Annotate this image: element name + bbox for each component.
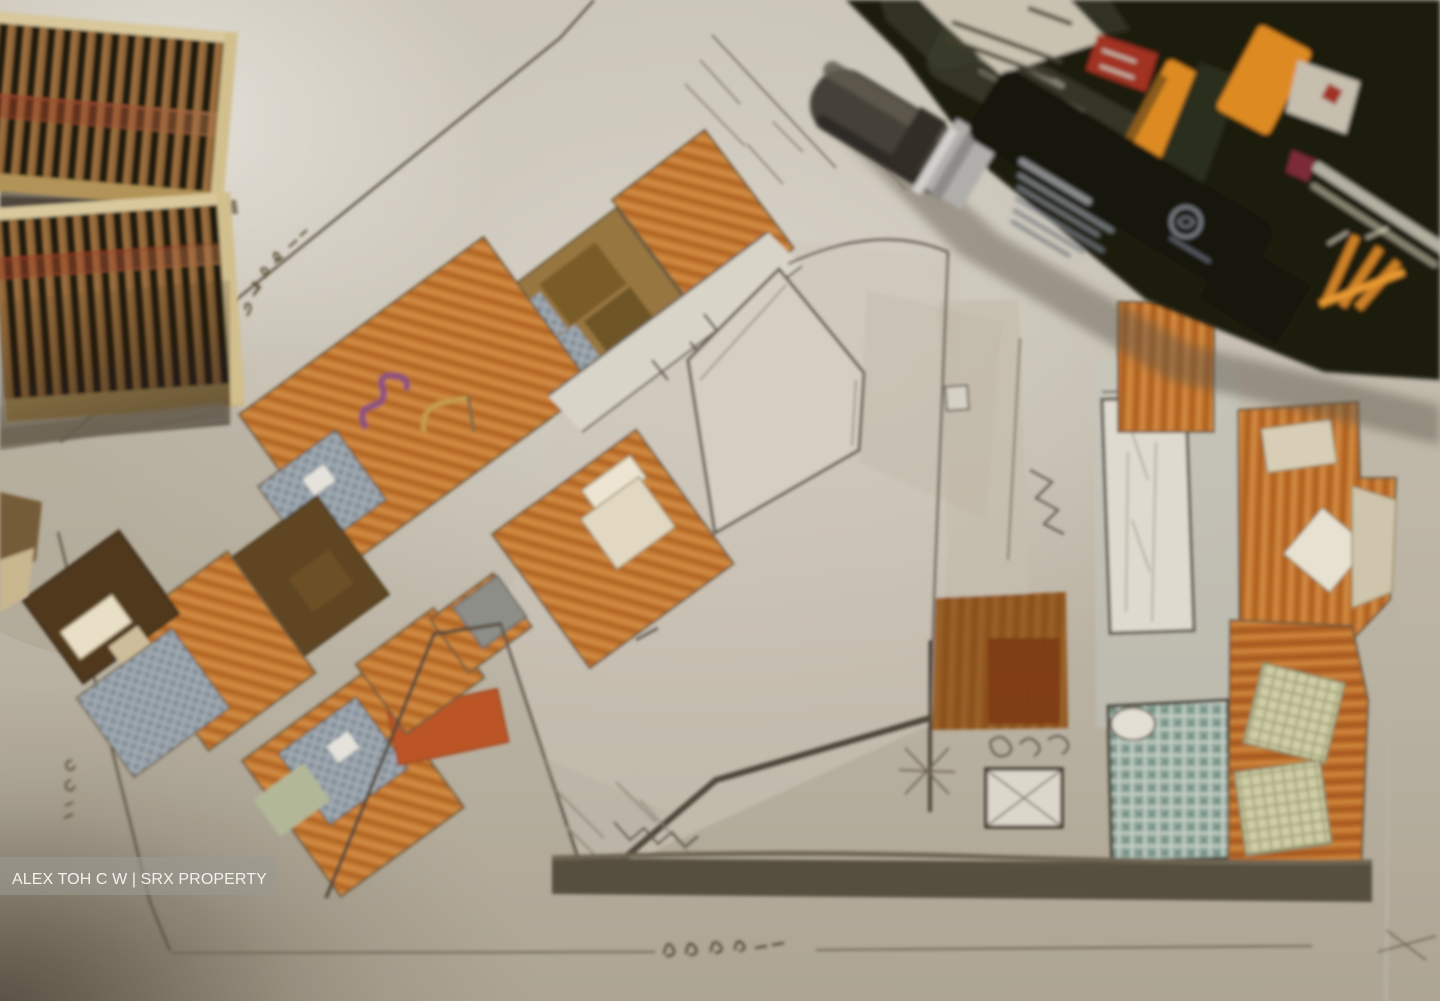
svg-text:ALEX TOH C W | SRX PROPERTY: ALEX TOH C W | SRX PROPERTY	[12, 871, 267, 888]
